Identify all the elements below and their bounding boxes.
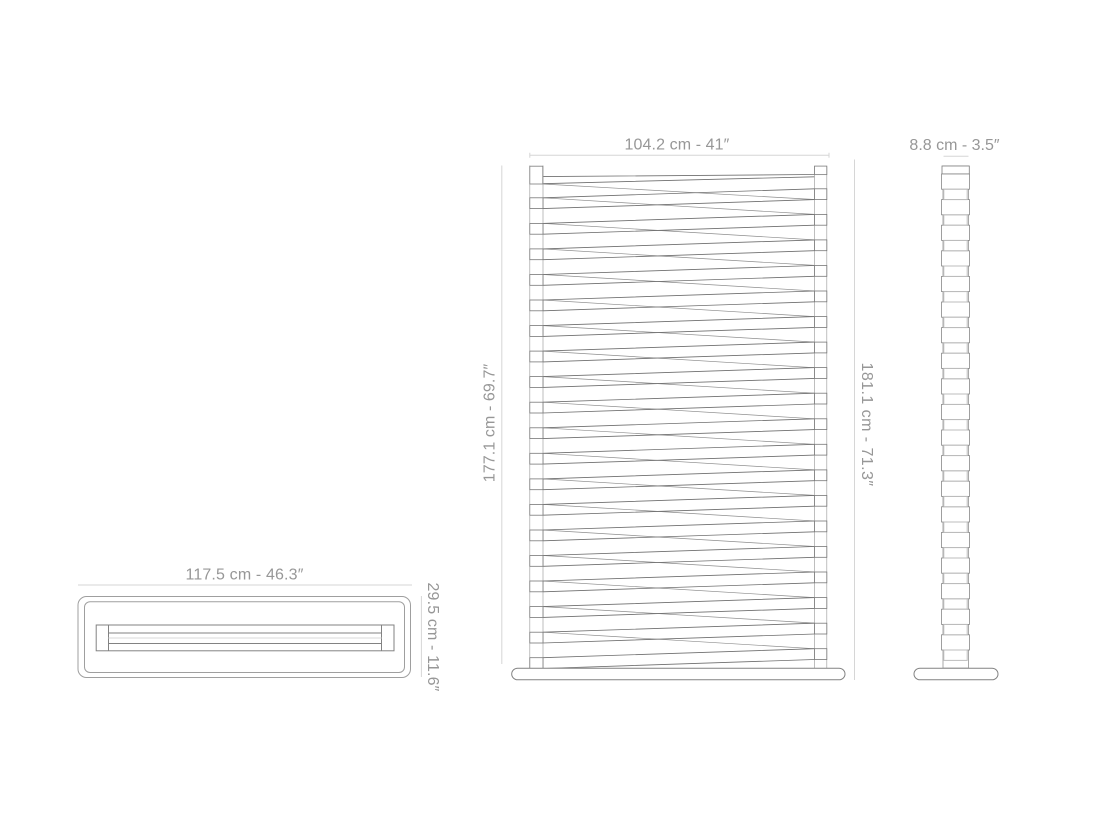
svg-text:177.1 cm - 69.7″: 177.1 cm - 69.7″ — [482, 364, 499, 483]
svg-text:117.5 cm - 46.3″: 117.5 cm - 46.3″ — [185, 567, 303, 584]
svg-text:181.1 cm - 71.3″: 181.1 cm - 71.3″ — [858, 362, 875, 486]
svg-text:104.2 cm - 41″: 104.2 cm - 41″ — [625, 137, 730, 154]
svg-text:8.8 cm - 3.5″: 8.8 cm - 3.5″ — [909, 137, 999, 154]
svg-text:29.5 cm - 11.6″: 29.5 cm - 11.6″ — [424, 583, 441, 692]
